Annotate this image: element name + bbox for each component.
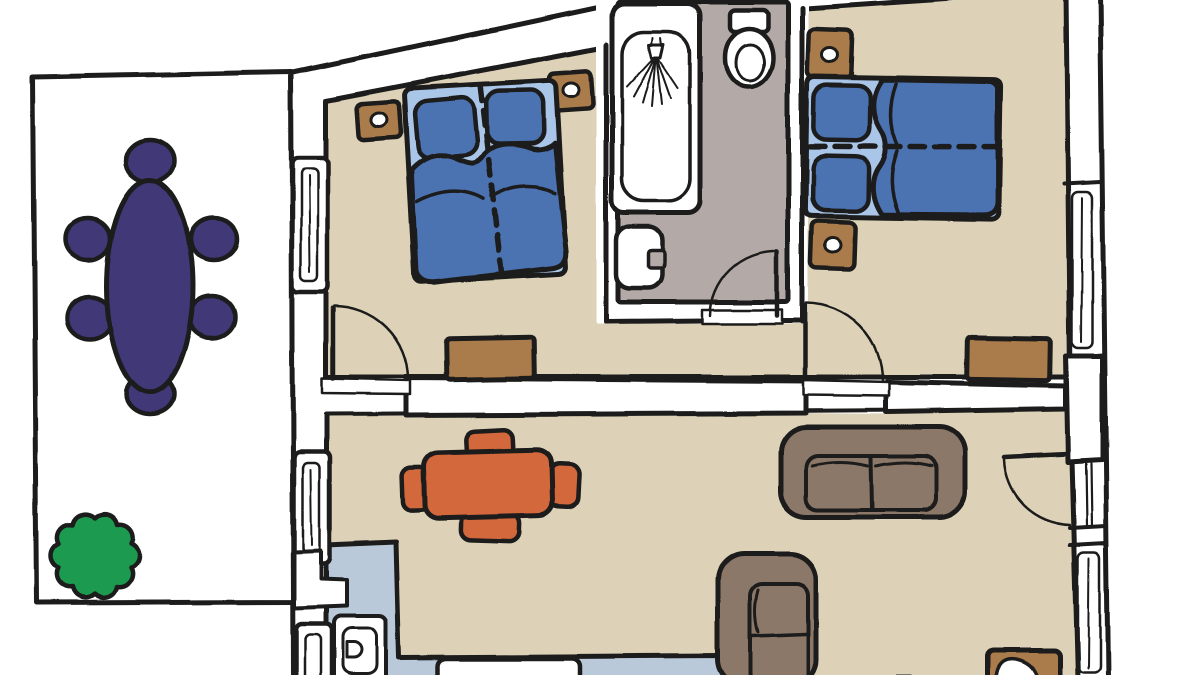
washbasin (616, 226, 664, 288)
bedroom2-door-threshold (803, 380, 889, 396)
kitchen-sink-unit (334, 616, 386, 675)
double-bed-2 (805, 76, 1001, 219)
nightstand (807, 29, 853, 79)
outdoor-chair (189, 296, 235, 338)
window-left-bedroom (292, 158, 328, 292)
outdoor-chair (191, 218, 237, 260)
bathtub (612, 4, 700, 212)
window-left-kitchen-upper (294, 452, 330, 564)
faucet-icon (347, 642, 362, 658)
bedroom1-door-threshold (322, 378, 410, 394)
pillow (486, 90, 544, 145)
dining-table (423, 449, 553, 518)
sofa-small (718, 554, 816, 675)
floor-plan (0, 0, 1200, 675)
pillow (413, 97, 478, 160)
pet-bed (988, 650, 1060, 675)
bathroom (596, 0, 808, 324)
lamp-icon (370, 111, 387, 126)
wall-pier-right (1066, 356, 1102, 462)
outdoor-table (107, 180, 193, 392)
pillow (812, 155, 869, 211)
nightstand (357, 101, 401, 140)
double-bed-1 (404, 80, 568, 283)
outdoor-chair (65, 218, 111, 260)
rug-bedroom2 (967, 337, 1052, 380)
lamp-icon (825, 238, 841, 253)
floor-plan-illustration (0, 0, 1200, 675)
kitchen-counter (438, 659, 580, 675)
lamp-icon (822, 48, 838, 63)
sofa-large (781, 427, 965, 517)
nightstand (810, 221, 856, 269)
window-left-kitchen-lower (296, 624, 332, 675)
pillow (813, 84, 870, 140)
rug-hall (446, 337, 535, 380)
outdoor-chair (126, 140, 174, 182)
hallway-wall (322, 378, 1068, 415)
shrub (51, 514, 139, 598)
toilet (725, 10, 773, 87)
lamp-icon (563, 82, 580, 97)
